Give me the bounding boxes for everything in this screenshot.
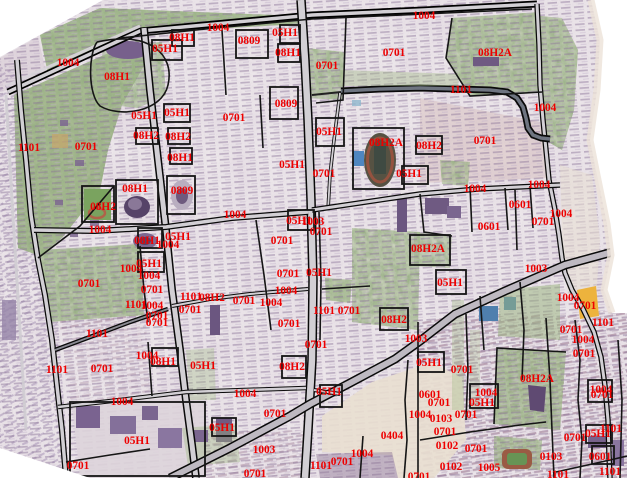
svg-text:1004: 1004 [157,239,180,251]
svg-text:1004: 1004 [260,297,283,309]
svg-text:0701: 0701 [591,389,614,401]
svg-text:0809: 0809 [171,185,194,197]
svg-text:08H2: 08H2 [416,140,442,152]
svg-text:0601: 0601 [509,199,532,211]
svg-text:1004: 1004 [207,22,230,34]
svg-text:08H2: 08H2 [279,361,305,373]
svg-text:1101: 1101 [600,423,622,435]
svg-text:08H2A: 08H2A [411,243,446,255]
svg-text:05H1: 05H1 [152,43,178,55]
svg-text:0701: 0701 [313,168,336,180]
svg-text:0701: 0701 [141,284,164,296]
svg-text:08H2: 08H2 [381,314,407,326]
svg-text:0701: 0701 [271,235,294,247]
svg-text:0701: 0701 [564,432,587,444]
svg-text:05H1: 05H1 [190,360,216,372]
svg-text:05H1: 05H1 [209,422,235,434]
svg-text:1003: 1003 [405,333,428,345]
svg-text:1004: 1004 [57,57,80,69]
svg-text:0701: 0701 [223,112,246,124]
svg-text:1004: 1004 [89,224,112,236]
svg-text:1004: 1004 [111,396,134,408]
svg-text:0701: 0701 [278,318,301,330]
svg-text:0701: 0701 [408,471,431,478]
svg-text:1101: 1101 [547,469,569,478]
svg-text:0701: 0701 [428,397,451,409]
svg-text:05H1: 05H1 [437,277,463,289]
svg-text:0701: 0701 [316,60,339,72]
svg-text:0601: 0601 [589,451,612,463]
svg-text:1004: 1004 [534,102,557,114]
svg-text:05H1: 05H1 [124,435,150,447]
svg-text:08H1: 08H1 [150,356,176,368]
svg-text:05H1: 05H1 [416,357,442,369]
svg-text:08H1: 08H1 [104,71,130,83]
svg-text:1004: 1004 [351,448,374,460]
svg-text:1005: 1005 [478,462,501,474]
svg-text:0404: 0404 [381,430,404,442]
svg-text:0701: 0701 [244,468,267,478]
svg-text:0701: 0701 [338,305,361,317]
svg-text:1101: 1101 [86,328,108,340]
svg-text:0701: 0701 [310,226,333,238]
svg-text:1101: 1101 [592,317,614,329]
svg-text:0701: 0701 [78,278,101,290]
svg-text:05H1: 05H1 [306,267,332,279]
svg-text:1101: 1101 [46,364,68,376]
svg-text:08H2A: 08H2A [478,47,513,59]
svg-text:0701: 0701 [465,443,488,455]
svg-text:1003: 1003 [253,444,276,456]
svg-text:0701: 0701 [455,409,478,421]
svg-text:1004: 1004 [413,10,436,22]
svg-text:0701: 0701 [146,317,169,329]
svg-text:0701: 0701 [573,348,596,360]
svg-text:05H1: 05H1 [469,397,495,409]
svg-text:05H1: 05H1 [316,386,342,398]
svg-text:05H1: 05H1 [131,110,157,122]
svg-text:05H1: 05H1 [279,159,305,171]
svg-text:0701: 0701 [91,363,114,375]
svg-text:0701: 0701 [532,216,555,228]
svg-text:1004: 1004 [275,285,298,297]
svg-text:1004: 1004 [224,209,247,221]
svg-text:1004: 1004 [138,270,161,282]
svg-text:0601: 0601 [478,221,501,233]
svg-text:1101: 1101 [313,305,335,317]
svg-text:1004: 1004 [464,183,487,195]
svg-text:1003: 1003 [525,263,548,275]
svg-text:0701: 0701 [75,141,98,153]
svg-text:0701: 0701 [451,364,474,376]
svg-text:08H2: 08H2 [133,130,159,142]
svg-text:0701: 0701 [179,304,202,316]
svg-text:1101: 1101 [18,142,40,154]
svg-text:0701: 0701 [264,408,287,420]
svg-text:1004: 1004 [409,409,432,421]
svg-text:0701: 0701 [474,135,497,147]
svg-text:0701: 0701 [305,339,328,351]
svg-text:08H1: 08H1 [122,183,148,195]
svg-text:05H1: 05H1 [164,107,190,119]
svg-text:0103: 0103 [540,451,563,463]
svg-text:1101: 1101 [310,460,332,472]
svg-text:08H2: 08H2 [90,201,116,213]
svg-text:0701: 0701 [233,295,256,307]
svg-text:1004: 1004 [572,334,595,346]
svg-text:0102: 0102 [440,461,463,473]
svg-text:05H1: 05H1 [272,27,298,39]
svg-text:08H1: 08H1 [167,152,193,164]
svg-text:08H1: 08H1 [275,47,301,59]
svg-text:1101: 1101 [450,84,472,96]
svg-text:08H2: 08H2 [165,131,191,143]
svg-text:05H1: 05H1 [396,168,422,180]
svg-text:0701: 0701 [67,460,90,472]
svg-text:0809: 0809 [238,35,261,47]
svg-text:08H2: 08H2 [199,292,225,304]
svg-text:0701: 0701 [434,426,457,438]
svg-text:0103: 0103 [430,413,453,425]
svg-text:1004: 1004 [528,179,551,191]
svg-text:0102: 0102 [436,440,459,452]
svg-text:0701: 0701 [574,300,597,312]
svg-text:0701: 0701 [383,47,406,59]
svg-text:05H1: 05H1 [316,126,342,138]
svg-text:08H2A: 08H2A [369,137,404,149]
svg-text:08H2A: 08H2A [520,373,555,385]
svg-text:1101: 1101 [599,466,621,478]
svg-text:0701: 0701 [331,456,354,468]
svg-text:0701: 0701 [277,268,300,280]
svg-text:1004: 1004 [234,388,257,400]
svg-text:0809: 0809 [275,98,298,110]
